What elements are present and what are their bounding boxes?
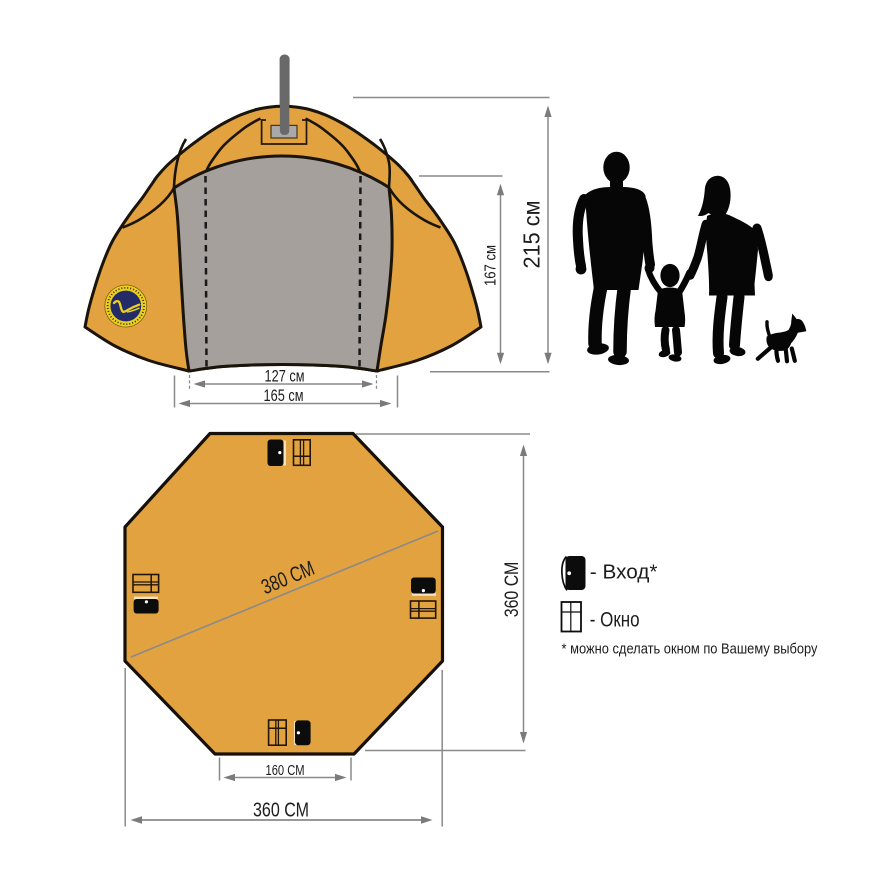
- svg-text:127 см: 127 см: [265, 368, 305, 386]
- svg-text:215 см: 215 см: [519, 201, 545, 269]
- svg-text:360 СМ: 360 СМ: [253, 799, 309, 822]
- svg-text:167 см: 167 см: [483, 245, 500, 286]
- svg-text:* можно сделать окном по Вашем: * можно сделать окном по Вашему выбору: [562, 641, 818, 658]
- svg-text:160 СМ: 160 СМ: [266, 763, 305, 779]
- svg-text:- Вход*: - Вход*: [590, 561, 658, 584]
- svg-text:165 см: 165 см: [264, 387, 304, 405]
- svg-text:360 СМ: 360 СМ: [501, 562, 523, 618]
- svg-text:- Окно: - Окно: [590, 608, 640, 632]
